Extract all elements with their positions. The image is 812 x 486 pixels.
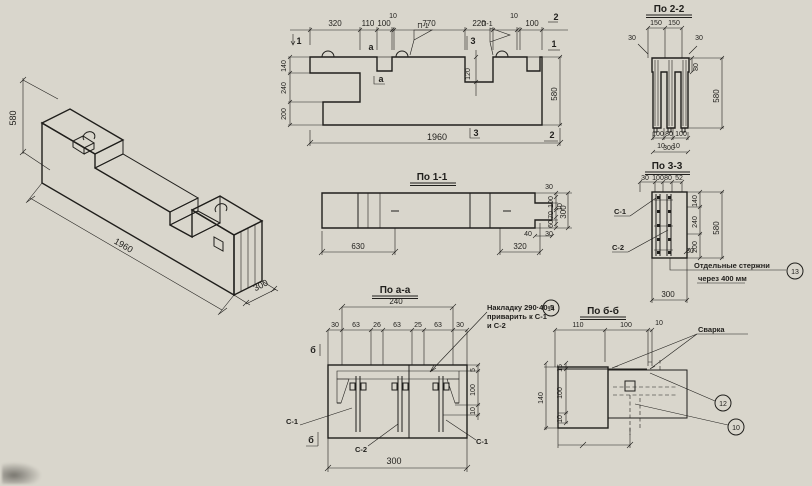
- weld-callout: Сварка: [612, 325, 748, 369]
- iso-dim-width: 300: [252, 277, 270, 293]
- section-title: По 3-3: [652, 161, 683, 172]
- section-1-1-body: [322, 193, 552, 228]
- bar-label: С-1: [614, 207, 626, 216]
- section-3-3-note: Отдельные стержни через 400 мм 13: [670, 258, 803, 283]
- lifting-loop-icon: [215, 204, 227, 212]
- section-1-1-view: По 1-1 630 320 40 30 100 10 70 60 30 300: [308, 162, 612, 290]
- section-3-3-right-dims: 140 240 200 30 580: [684, 190, 724, 260]
- dim: 26: [373, 322, 381, 329]
- section-a-a-body: [328, 365, 467, 438]
- cut-mark-3: 3: [470, 36, 475, 46]
- lifting-loop-icon: [496, 51, 508, 57]
- cut-mark-2: 2: [549, 130, 554, 140]
- cut-mark-a: а: [368, 42, 374, 52]
- elevation-bottom-dim: 1960: [307, 128, 563, 146]
- dim: 10: [557, 415, 564, 423]
- dim: 80: [665, 131, 673, 138]
- dim: 220: [472, 19, 486, 28]
- position-number: 12: [719, 401, 727, 408]
- dim: 80: [664, 175, 672, 182]
- anchor-label: С-1: [286, 417, 298, 426]
- section-b-b-left-dims: 15 100 10 140: [538, 361, 568, 430]
- dim: 70: [548, 211, 555, 219]
- dim: 30: [331, 322, 339, 329]
- note-text: Отдельные стержни: [694, 261, 770, 270]
- dim: 30: [545, 184, 553, 191]
- dim: 15: [557, 364, 564, 372]
- dim: 320: [328, 19, 342, 28]
- section-b-b-view: По б-б 110 100 10 Сварка 12 10: [540, 290, 812, 486]
- section-2-2-80-dim: 80: [690, 56, 700, 74]
- anchor-plates: [350, 376, 449, 432]
- dim: 630: [351, 242, 365, 251]
- lifting-loop-icon: [396, 51, 408, 57]
- section-a-a-right-dims: 5 100 10: [443, 363, 480, 420]
- dim: 100: [377, 19, 391, 28]
- section-2-2-body: [652, 58, 689, 132]
- dim: 240: [281, 82, 288, 94]
- section-3-3-top-dims: 30 100 80 52: [638, 175, 684, 192]
- dim: 100: [548, 196, 555, 208]
- dim: 63: [393, 322, 401, 329]
- dim-total: 140: [538, 392, 545, 404]
- section-3-3-body: [652, 192, 687, 258]
- elevation-view: П-1 П-1 320 110 100 10 770 220 10 100 14…: [280, 5, 612, 162]
- position-bubbles: 12 10: [635, 373, 744, 435]
- section-title: По 1-1: [417, 172, 448, 183]
- elevation-outline: [310, 51, 542, 125]
- note-text: и С-2: [487, 321, 506, 330]
- isometric-view: 580 1960 300: [5, 55, 315, 345]
- dim: 5: [470, 368, 477, 372]
- grout-key-hatch: [527, 57, 540, 71]
- cut-mark-b: б: [308, 435, 314, 445]
- scan-smudge: [2, 462, 42, 484]
- section-title: По 2-2: [654, 4, 685, 15]
- weld-label: Сварка: [698, 325, 725, 334]
- dim: 30: [545, 231, 553, 238]
- dim: 30: [456, 322, 464, 329]
- dim: 320: [513, 242, 527, 251]
- dim: 63: [352, 322, 360, 329]
- dim: 25: [414, 322, 422, 329]
- section-b-b-body: [558, 360, 687, 448]
- dim: 110: [362, 19, 375, 28]
- dim: 1960: [427, 132, 447, 142]
- anchor-label: С-2: [355, 445, 367, 454]
- section-3-3-view: По 3-3 30 100 80 52 С-1 С-2 140 240: [608, 158, 812, 305]
- dim: 60: [548, 220, 555, 228]
- dim: 30: [695, 35, 703, 42]
- dim: 100: [675, 131, 687, 138]
- section-a-a-view: По а-а 240 30 63 26 63 25 63 30: [283, 283, 570, 486]
- section-b-b-top-dims: 110 100 10: [553, 320, 663, 367]
- dim: 10: [510, 13, 518, 20]
- cut-mark-a: а: [378, 74, 384, 84]
- section-title: По а-а: [380, 285, 411, 296]
- section-2-2-view: По 2-2 150 150 30 30 80 100 80 100 1: [612, 0, 812, 160]
- dim: 100: [525, 19, 539, 28]
- section-title: По б-б: [587, 305, 619, 317]
- dim: 30: [641, 175, 649, 182]
- dim: 100: [557, 387, 564, 399]
- section-2-2-top-dims: 150 150 30 30: [628, 20, 703, 58]
- dim: 580: [550, 87, 559, 101]
- cut-mark-1: 1: [296, 36, 301, 46]
- dim: 30: [686, 248, 694, 255]
- lifting-loop-icon: [83, 132, 95, 140]
- elevation-recess-dim: 120: [465, 50, 478, 96]
- dim: 200: [281, 108, 288, 120]
- cut-mark-2: 2: [553, 12, 558, 22]
- isometric-block: [42, 109, 262, 295]
- lifting-loop-icon: [322, 51, 334, 57]
- position-number: 13: [791, 269, 799, 276]
- dim: 140: [281, 60, 288, 72]
- section-1-1-width-dims: 30 100 10 70 60 30 300: [535, 184, 572, 238]
- dim: 150: [650, 20, 662, 27]
- section-cut-marks: 1 2 1 2 3 3 а а: [291, 12, 560, 141]
- section-2-2-bottom-dims: 100 80 100 10 10 300: [651, 128, 690, 154]
- dim: 150: [668, 20, 680, 27]
- dim: 10: [470, 407, 477, 415]
- dim: 120: [465, 68, 472, 80]
- dim: 110: [572, 322, 583, 329]
- section-a-a-span-dim: 240: [339, 297, 456, 310]
- dim-total: 300: [663, 145, 675, 152]
- dim: 30: [628, 35, 636, 42]
- dim: 10: [389, 13, 397, 20]
- position-number: 10: [732, 425, 740, 432]
- note-text: через 400 мм: [698, 274, 747, 283]
- grout-key-hatch: [377, 57, 392, 71]
- elevation-right-dim: 580: [542, 55, 562, 127]
- dim: 10: [655, 320, 663, 327]
- elevation-left-dims: 140 240 200: [281, 55, 323, 127]
- dim: 63: [434, 322, 442, 329]
- section-a-a-row-dims: 30 63 26 63 25 63 30: [326, 307, 469, 365]
- dim: 140: [692, 195, 699, 207]
- iso-dim-height: 580: [8, 110, 18, 125]
- dim-total: 300: [559, 205, 568, 219]
- dim: 300: [386, 456, 401, 466]
- dim: 100: [652, 175, 664, 182]
- dim: 240: [389, 297, 403, 306]
- section-a-a-bottom-dim: 300: [325, 438, 470, 472]
- bar-label: С-2: [612, 243, 624, 252]
- cut-mark-1: 1: [551, 39, 556, 49]
- dim: 52: [675, 175, 683, 182]
- note-text: приварить к С-1: [487, 312, 547, 321]
- dim: 100: [470, 384, 477, 396]
- dim: 580: [712, 89, 721, 103]
- dim: 100: [652, 131, 664, 138]
- dim: 80: [693, 63, 700, 71]
- section-a-a-cut-marks: б б: [306, 344, 320, 446]
- cut-mark-b: б: [310, 345, 316, 355]
- dim: 100: [620, 322, 632, 329]
- drawing-sheet: 580 1960 300 П-1 П-1: [0, 0, 812, 486]
- dim: 40: [524, 231, 532, 238]
- iso-dim-length: 1960: [112, 236, 134, 255]
- dim: 770: [422, 19, 436, 28]
- cut-mark-3: 3: [473, 128, 478, 138]
- dim: 240: [692, 216, 699, 228]
- anchor-label: С-1: [476, 437, 488, 446]
- dim: 580: [712, 221, 721, 235]
